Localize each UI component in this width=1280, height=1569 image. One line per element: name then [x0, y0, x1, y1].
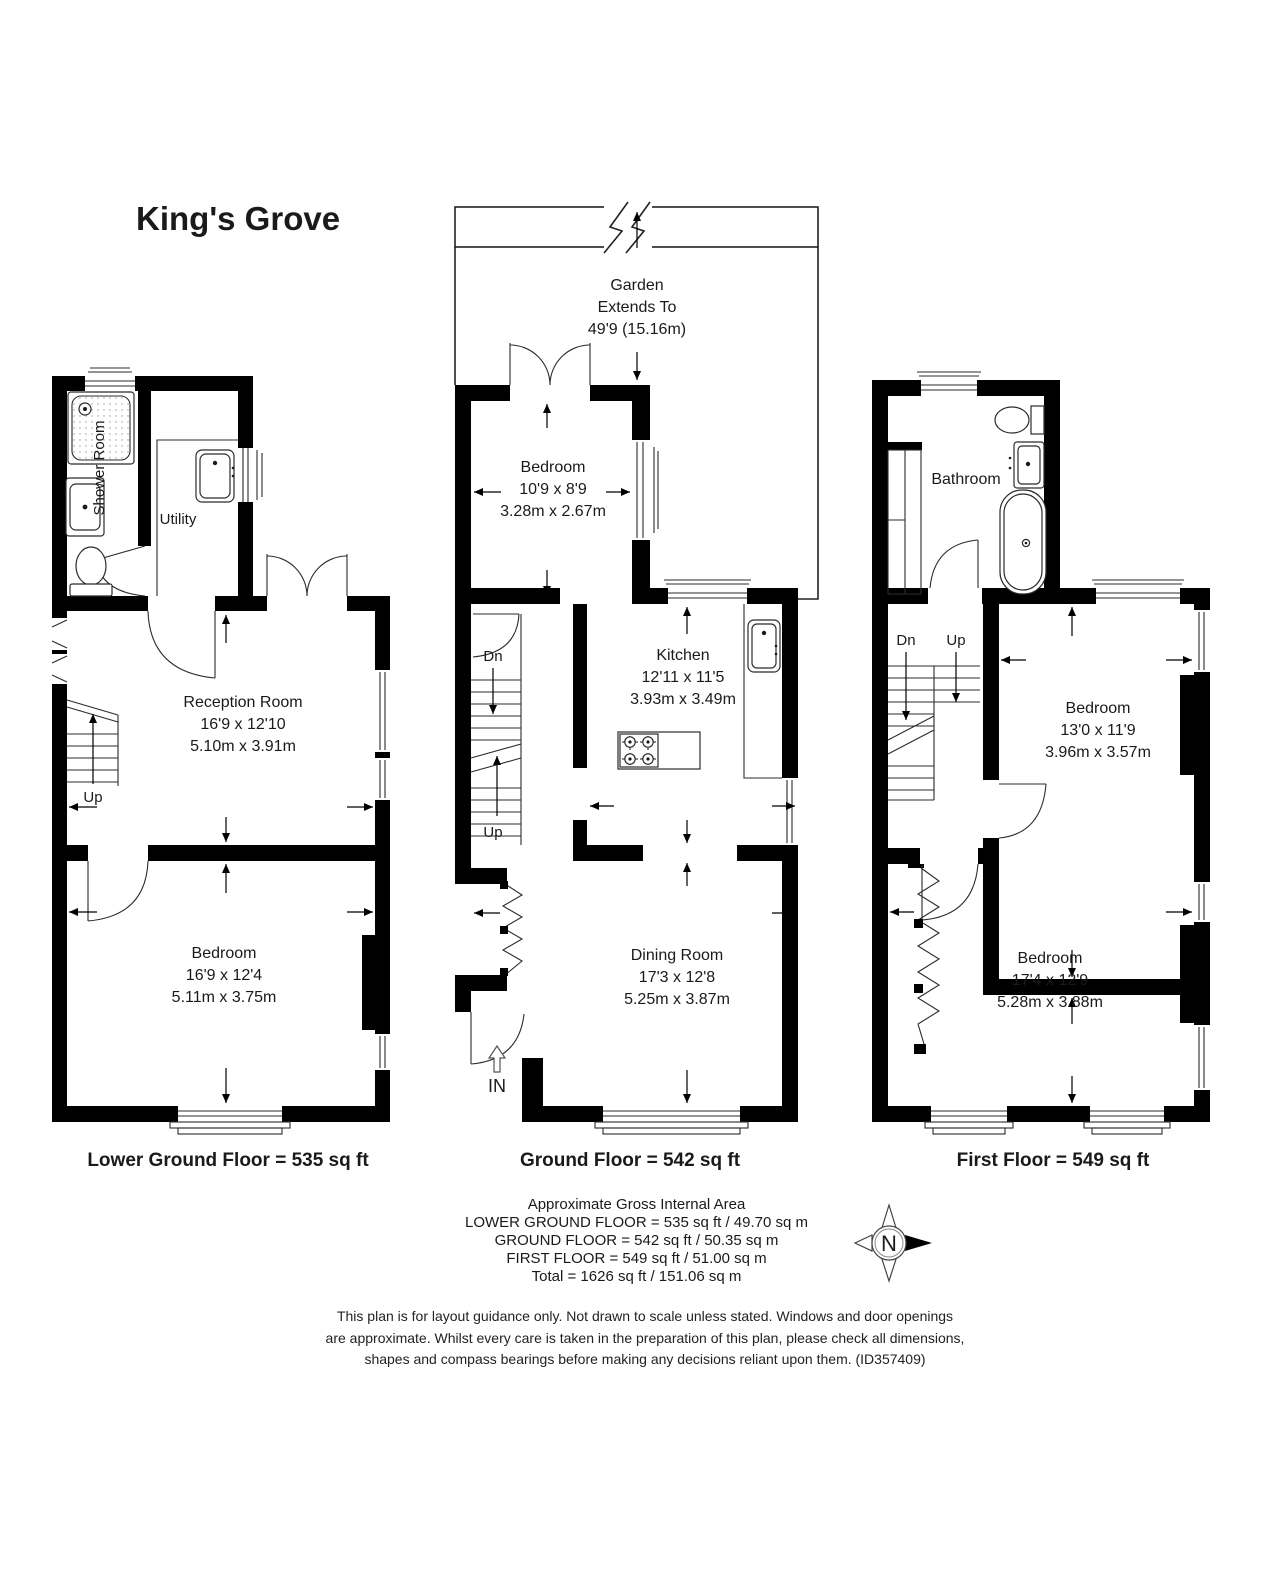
summary-line: GROUND FLOOR = 542 sq ft / 50.35 sq m	[420, 1232, 853, 1250]
bedroom-name: Bedroom	[521, 459, 586, 476]
summary-line: Total = 1626 sq ft / 151.06 sq m	[420, 1268, 853, 1286]
ground-floor-plan: Garden Extends To 49'9 (15.16m) Bedroom …	[445, 195, 835, 1140]
bedroom2-imperial: 17'4 x 12'9	[1012, 972, 1088, 989]
toilet	[995, 406, 1044, 434]
bedroom-name: Bedroom	[192, 945, 257, 962]
french-door-arc	[510, 345, 550, 385]
garden-line3: 49'9 (15.16m)	[588, 321, 686, 338]
reception-imperial: 16'9 x 12'10	[200, 716, 285, 733]
page-title: King's Grove	[136, 200, 340, 238]
lower-ground-floor-caption: Lower Ground Floor = 535 sq ft	[58, 1150, 398, 1172]
door-arc	[999, 784, 1046, 838]
lower-ground-floor-plan: Shower Room Utility Reception Room 16'9 …	[40, 360, 400, 1138]
bay-zigzag	[500, 881, 522, 976]
disclaimer: This plan is for layout guidance only. N…	[315, 1306, 975, 1371]
disclaimer-line: shapes and compass bearings before makin…	[315, 1349, 975, 1371]
bedroom1-imperial: 13'0 x 11'9	[1060, 722, 1135, 739]
bedroom1-name: Bedroom	[1066, 700, 1131, 717]
cooktop	[620, 734, 658, 767]
doors	[471, 343, 590, 1072]
ground-floor-caption: Ground Floor = 542 sq ft	[450, 1150, 810, 1172]
bay-zigzag	[914, 868, 939, 1054]
entrance-arrow	[489, 1046, 505, 1072]
garden-line1: Garden	[610, 277, 663, 294]
area-summary: Approximate Gross Internal Area LOWER GR…	[420, 1196, 853, 1286]
reception-name: Reception Room	[183, 694, 302, 711]
disclaimer-line: are approximate. Whilst every care is ta…	[315, 1328, 975, 1350]
chimney-breast	[1180, 675, 1210, 775]
kitchen-sink	[748, 620, 780, 672]
bedroom2-name: Bedroom	[1018, 950, 1083, 967]
dining-metric: 5.25m x 3.87m	[624, 991, 730, 1008]
french-door-arc	[550, 345, 590, 385]
dining-imperial: 17'3 x 12'8	[639, 969, 715, 986]
summary-heading: Approximate Gross Internal Area	[420, 1196, 853, 1214]
utility-sink	[196, 450, 234, 502]
bedroom2-metric: 5.28m x 3.88m	[997, 994, 1103, 1011]
shower-room-label: Shower Room	[91, 420, 108, 515]
first-floor-plan: Bathroom Dn Up Bedroom 13'0 x 11'9 3.96m…	[860, 365, 1225, 1137]
stairs	[888, 652, 980, 800]
bathtub	[1000, 490, 1046, 594]
bedroom-metric: 3.28m x 2.67m	[500, 503, 606, 520]
recess	[888, 450, 921, 594]
bathroom-fittings	[888, 406, 1046, 594]
summary-line: FIRST FLOOR = 549 sq ft / 51.00 sq m	[420, 1250, 853, 1268]
kitchen-metric: 3.93m x 3.49m	[630, 691, 736, 708]
entrance-label: IN	[488, 1076, 506, 1096]
compass-rose: N	[845, 1198, 940, 1293]
garden-line2: Extends To	[598, 299, 677, 316]
room-labels: Shower Room Utility Reception Room 16'9 …	[83, 420, 302, 1006]
summary-line: LOWER GROUND FLOOR = 535 sq ft / 49.70 s…	[420, 1214, 853, 1232]
bedroom-imperial: 16'9 x 12'4	[186, 967, 262, 984]
chimney-breast	[362, 935, 390, 1030]
dn-label: Dn	[483, 648, 502, 665]
utility-label: Utility	[160, 511, 197, 528]
french-door-arc	[267, 556, 307, 596]
disclaimer-line: This plan is for layout guidance only. N…	[315, 1306, 975, 1328]
up-label: Up	[946, 632, 965, 649]
bathroom-label: Bathroom	[931, 471, 1000, 488]
door-arc	[922, 864, 978, 920]
bedroom1-metric: 3.96m x 3.57m	[1045, 744, 1151, 761]
french-door-arc	[307, 556, 347, 596]
door-arc	[148, 611, 215, 678]
bedroom-metric: 5.11m x 3.75m	[172, 989, 277, 1006]
chimney-breast	[1180, 925, 1210, 1023]
stairs	[67, 700, 118, 786]
kitchen-name: Kitchen	[656, 647, 709, 664]
door-arc	[930, 540, 978, 588]
compass-point-left	[855, 1235, 872, 1251]
reception-metric: 5.10m x 3.91m	[190, 738, 296, 755]
dining-name: Dining Room	[631, 947, 723, 964]
first-floor-caption: First Floor = 549 sq ft	[878, 1150, 1228, 1172]
up-label: Up	[83, 789, 102, 806]
compass-point-north	[905, 1235, 932, 1251]
basin	[1009, 442, 1044, 488]
compass-north-label: N	[881, 1231, 897, 1256]
up-label: Up	[483, 824, 502, 841]
bedroom-imperial: 10'9 x 8'9	[519, 481, 587, 498]
floorplan-page: King's Grove	[0, 0, 1280, 1569]
kitchen-imperial: 12'11 x 11'5	[642, 669, 725, 686]
dn-label: Dn	[896, 632, 915, 649]
toilet	[70, 547, 112, 596]
